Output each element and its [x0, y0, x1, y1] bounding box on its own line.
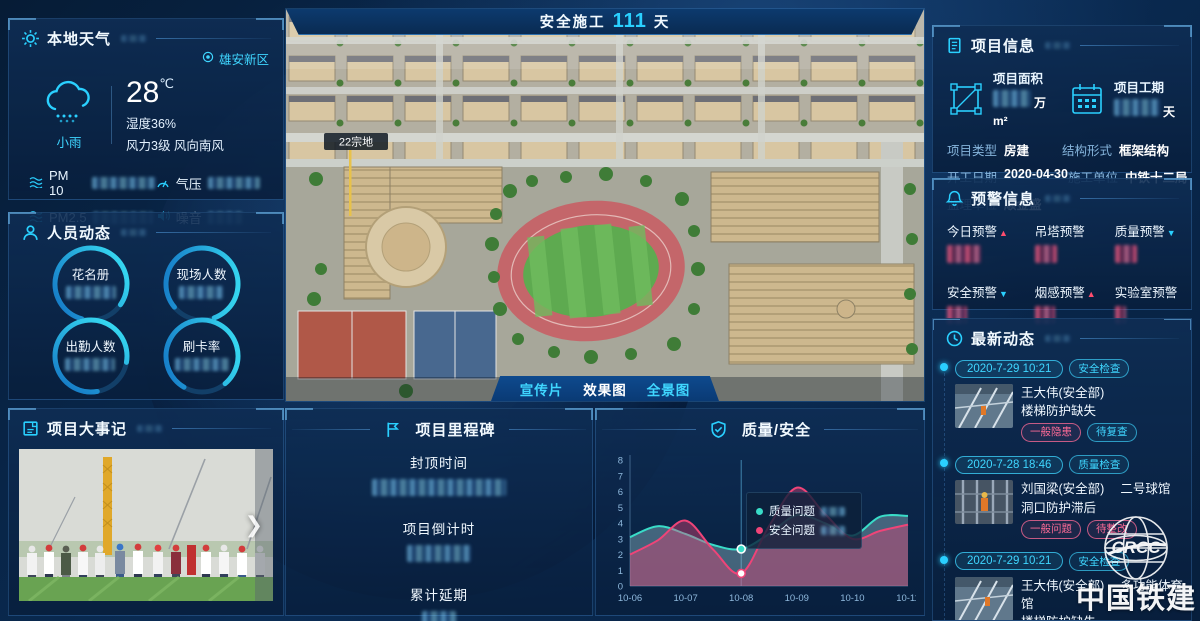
gauge-onsite: 现场人数	[156, 251, 248, 317]
weather-panel: 本地天气 雄安新区 小雨	[8, 18, 284, 200]
svg-text:0: 0	[618, 582, 623, 593]
site-render-image: 22宗地	[286, 9, 924, 401]
svg-text:5: 5	[618, 503, 623, 514]
masked-value	[372, 479, 506, 496]
news-item[interactable]: 2020-7-29 10:21 安全检查 王大伟(安全部) 楼梯防护缺失 一般隐…	[955, 359, 1183, 442]
note-icon	[21, 419, 40, 438]
warnings-panel: 预警信息 今日预警▲ 吊塔预警 质量预警▼ 安全预警▼ 烟感预警▲	[932, 178, 1192, 310]
safety-days-prefix: 安全施工	[540, 11, 606, 32]
rain-cloud-icon	[40, 79, 98, 130]
warning-today: 今日预警▲	[947, 221, 1035, 268]
masked-decor	[1045, 195, 1071, 202]
news-tag: 安全检查	[1069, 359, 1129, 378]
sun-icon	[21, 29, 40, 48]
svg-text:7: 7	[618, 471, 623, 482]
masked-value	[65, 358, 115, 371]
emission-icon	[29, 176, 43, 191]
status-badge: 待复查	[1087, 423, 1137, 442]
masked-value	[66, 286, 116, 299]
events-panel: 项目大事记	[8, 408, 284, 616]
news-date: 2020-7-28 18:46	[955, 456, 1063, 474]
chart-tooltip: 质量问题 安全问题	[746, 492, 862, 549]
svg-text:10-10: 10-10	[840, 593, 864, 604]
warning-crane: 吊塔预警	[1035, 221, 1115, 268]
area-icon	[947, 80, 985, 118]
milestone-topping-time: 封顶时间	[372, 452, 506, 501]
svg-text:1: 1	[618, 566, 623, 577]
masked-value	[1115, 245, 1137, 263]
masked-decor	[1045, 335, 1071, 342]
viewer-mode-switch: 宣传片 效果图 全景图	[491, 376, 719, 401]
quality-safety-title: 质量/安全	[742, 419, 811, 440]
viewer-btn-render[interactable]: 效果图	[583, 379, 627, 399]
calendar-icon	[1068, 80, 1106, 118]
masked-value	[175, 358, 229, 371]
masked-value	[947, 245, 981, 263]
masked-decor	[121, 35, 147, 42]
pressure-icon	[156, 176, 170, 191]
viewer-btn-promo[interactable]: 宣传片	[520, 379, 564, 399]
temperature: 28℃	[126, 76, 224, 110]
clock-icon	[945, 329, 964, 348]
masked-value	[1035, 245, 1057, 263]
hazard-badge: 一般问题	[1021, 520, 1081, 539]
trend-down-icon: ▼	[999, 289, 1008, 299]
tooltip-quality-row: 质量问题	[756, 503, 852, 519]
location-icon	[202, 51, 214, 66]
shield-check-icon	[709, 420, 728, 439]
stat-project-area: 项目面积 万m²	[947, 68, 1058, 130]
svg-text:10-08: 10-08	[729, 593, 753, 604]
timeline-dot	[940, 556, 948, 564]
milestone-title: 项目里程碑	[416, 419, 496, 440]
news-photo	[955, 480, 1013, 524]
masked-value	[993, 90, 1031, 107]
field-structure-form: 结构形式框架结构	[1062, 140, 1177, 159]
svg-text:10-06: 10-06	[618, 593, 642, 604]
weather-title: 本地天气	[47, 28, 111, 49]
svg-text:10-11: 10-11	[896, 593, 916, 604]
crcc-logo: CRCC 中国铁建	[1076, 510, 1196, 617]
gauge-swipe-rate: 刷卡率	[156, 323, 248, 389]
milestone-countdown: 项目倒计时	[403, 518, 476, 567]
metric-pm10: PM 10	[29, 168, 156, 198]
masked-value	[821, 507, 845, 516]
wind: 风力3级 风向南风	[126, 135, 224, 154]
safety-days-count: 111	[613, 10, 647, 33]
dashboard: 22宗地 安全施工 111 天 宣传片 效果图 全景图 本地天气	[0, 0, 1200, 621]
masked-value	[407, 545, 471, 562]
weather-condition: 小雨	[56, 132, 81, 151]
flag-icon	[383, 420, 402, 439]
svg-text:8: 8	[618, 456, 623, 467]
document-icon	[945, 36, 964, 55]
trend-up-icon: ▲	[999, 228, 1008, 238]
crcc-mark: CRCC	[1111, 538, 1161, 557]
field-project-type: 项目类型房建	[947, 140, 1062, 159]
location-label: 雄安新区	[219, 49, 269, 68]
viewer-btn-panorama[interactable]: 全景图	[647, 379, 691, 399]
masked-value	[422, 611, 456, 621]
project-info-panel: 项目信息 项目面积 万m²	[932, 25, 1192, 173]
safety-days-suffix: 天	[654, 11, 671, 32]
humidity: 湿度36%	[126, 113, 224, 132]
safety-series-dot	[756, 527, 763, 534]
news-date: 2020-7-29 10:21	[955, 360, 1063, 378]
stat-project-duration: 项目工期 天	[1068, 68, 1179, 130]
trend-up-icon: ▲	[1087, 289, 1096, 299]
news-title: 最新动态	[971, 328, 1035, 349]
svg-text:6: 6	[618, 487, 623, 498]
masked-decor	[1045, 42, 1071, 49]
event-photo: ❯	[19, 449, 273, 601]
masked-value	[1114, 99, 1160, 116]
tooltip-safety-row: 安全问题	[756, 522, 852, 538]
masked-value	[821, 526, 845, 535]
personnel-panel: 人员动态 花名册 现场人数 出勤人数 刷卡率	[8, 212, 284, 400]
masked-value	[92, 177, 156, 189]
gauge-roster: 花名册	[45, 251, 137, 317]
gauge-attendance: 出勤人数	[45, 323, 137, 389]
svg-text:10-09: 10-09	[785, 593, 809, 604]
milestone-panel: 项目里程碑 封顶时间 项目倒计时 累计延期	[285, 408, 593, 616]
news-photo	[955, 384, 1013, 428]
location-badge: 雄安新区	[9, 49, 283, 68]
masked-value	[208, 177, 260, 189]
masked-decor	[121, 229, 147, 236]
warning-quality: 质量预警▼	[1115, 221, 1191, 268]
site-3d-viewer[interactable]: 22宗地 安全施工 111 天 宣传片 效果图 全景图	[285, 8, 925, 402]
person-icon	[21, 223, 40, 242]
plot-label: 22宗地	[339, 135, 373, 149]
milestone-delay: 累计延期	[410, 584, 468, 621]
timeline-dot	[940, 459, 948, 467]
bell-icon	[945, 189, 964, 208]
quality-series-dot	[756, 508, 763, 515]
metric-pressure: 气压	[156, 168, 269, 198]
carousel-next-arrow[interactable]: ❯	[245, 512, 263, 538]
safety-days-banner: 安全施工 111 天	[286, 9, 924, 35]
news-tag: 质量检查	[1069, 455, 1129, 474]
svg-text:3: 3	[618, 534, 623, 545]
trend-down-icon: ▼	[1167, 228, 1176, 238]
events-title: 项目大事记	[47, 418, 127, 439]
quality-safety-panel: 质量/安全 01234567810-0610-0710-0810-0910-10…	[595, 408, 925, 616]
project-info-title: 项目信息	[971, 35, 1035, 56]
warnings-title: 预警信息	[971, 188, 1035, 209]
masked-decor	[137, 425, 163, 432]
news-date: 2020-7-29 10:21	[955, 552, 1063, 570]
svg-text:2: 2	[618, 550, 623, 561]
news-photo	[955, 577, 1013, 621]
crcc-brand-name: 中国铁建	[1076, 575, 1196, 617]
svg-text:4: 4	[618, 519, 623, 530]
hazard-badge: 一般隐患	[1021, 423, 1081, 442]
masked-value	[179, 286, 223, 299]
svg-text:10-07: 10-07	[673, 593, 697, 604]
timeline-dot	[940, 363, 948, 371]
